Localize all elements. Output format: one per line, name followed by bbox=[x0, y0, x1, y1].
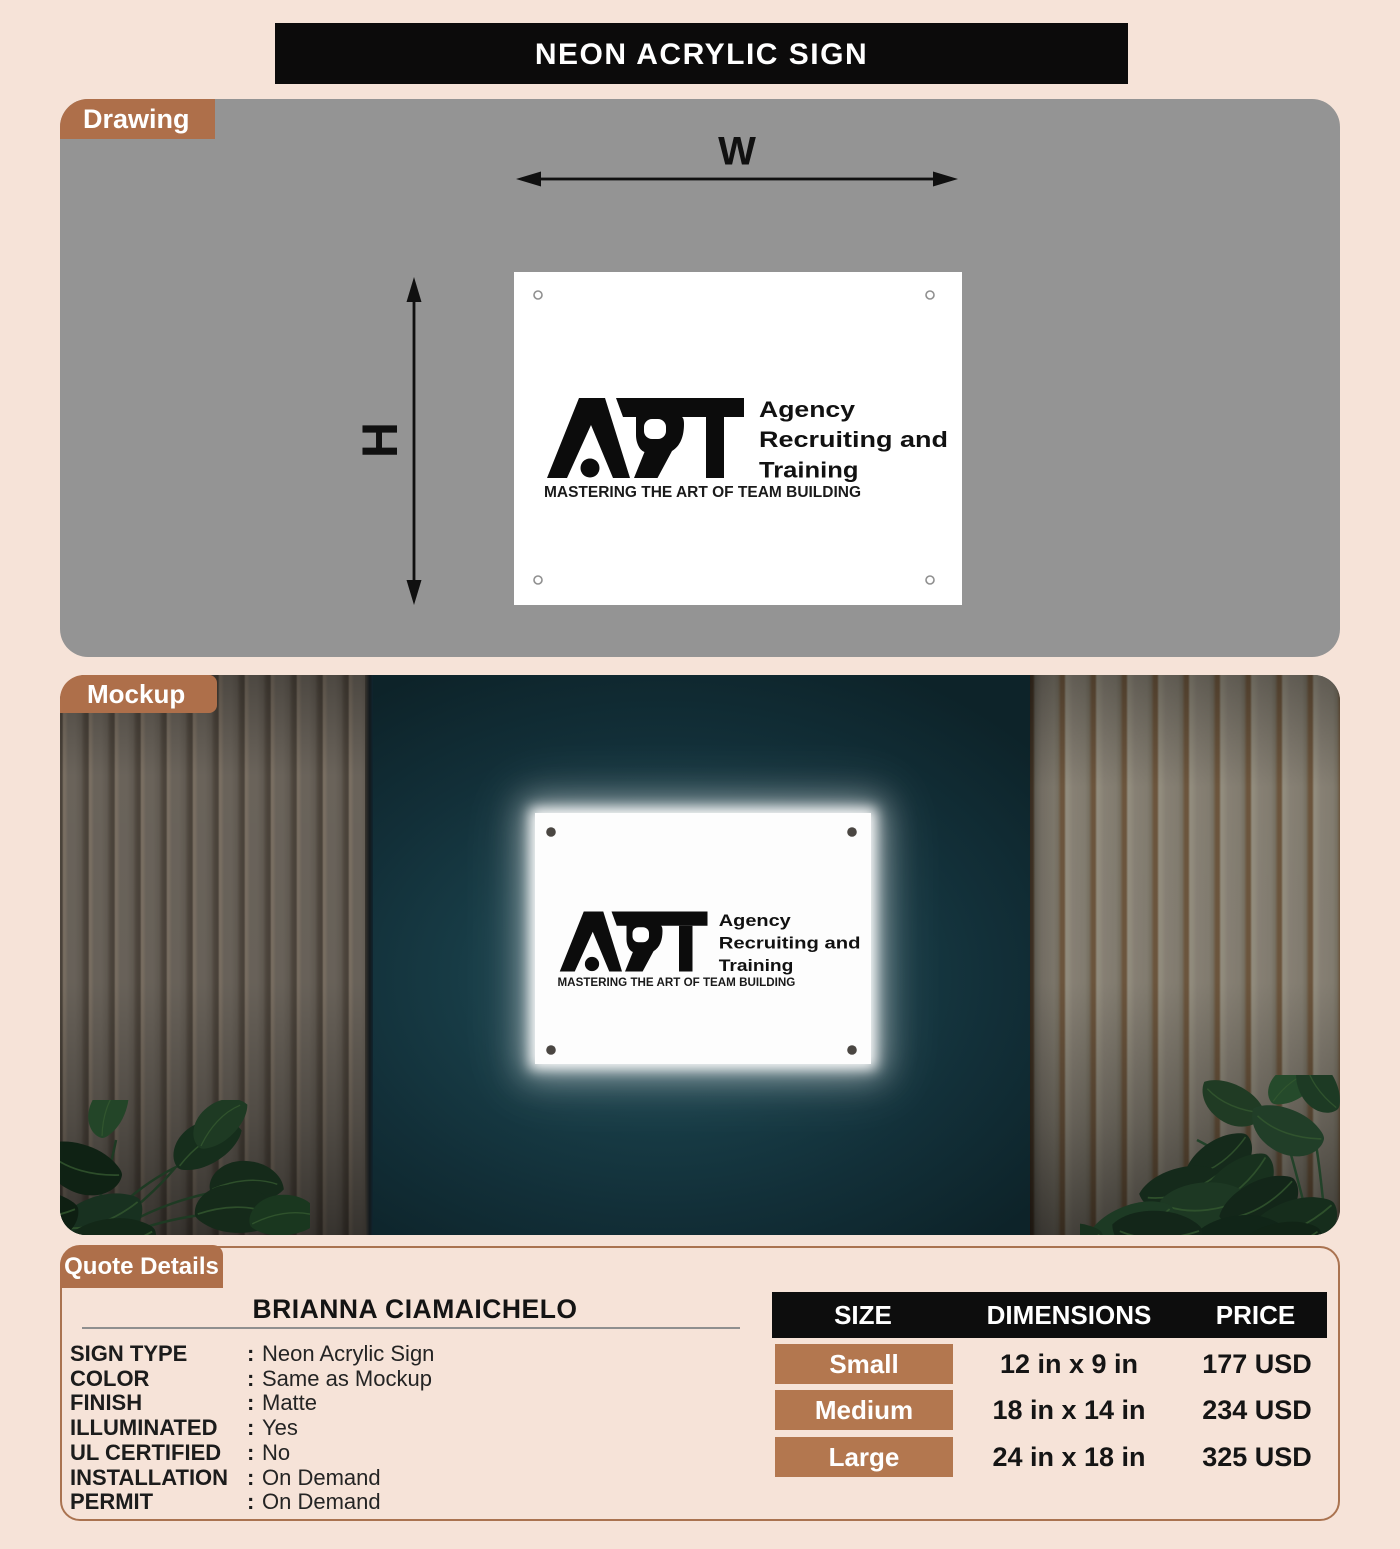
svg-text:W: W bbox=[718, 130, 756, 174]
svg-text:H: H bbox=[352, 422, 408, 458]
